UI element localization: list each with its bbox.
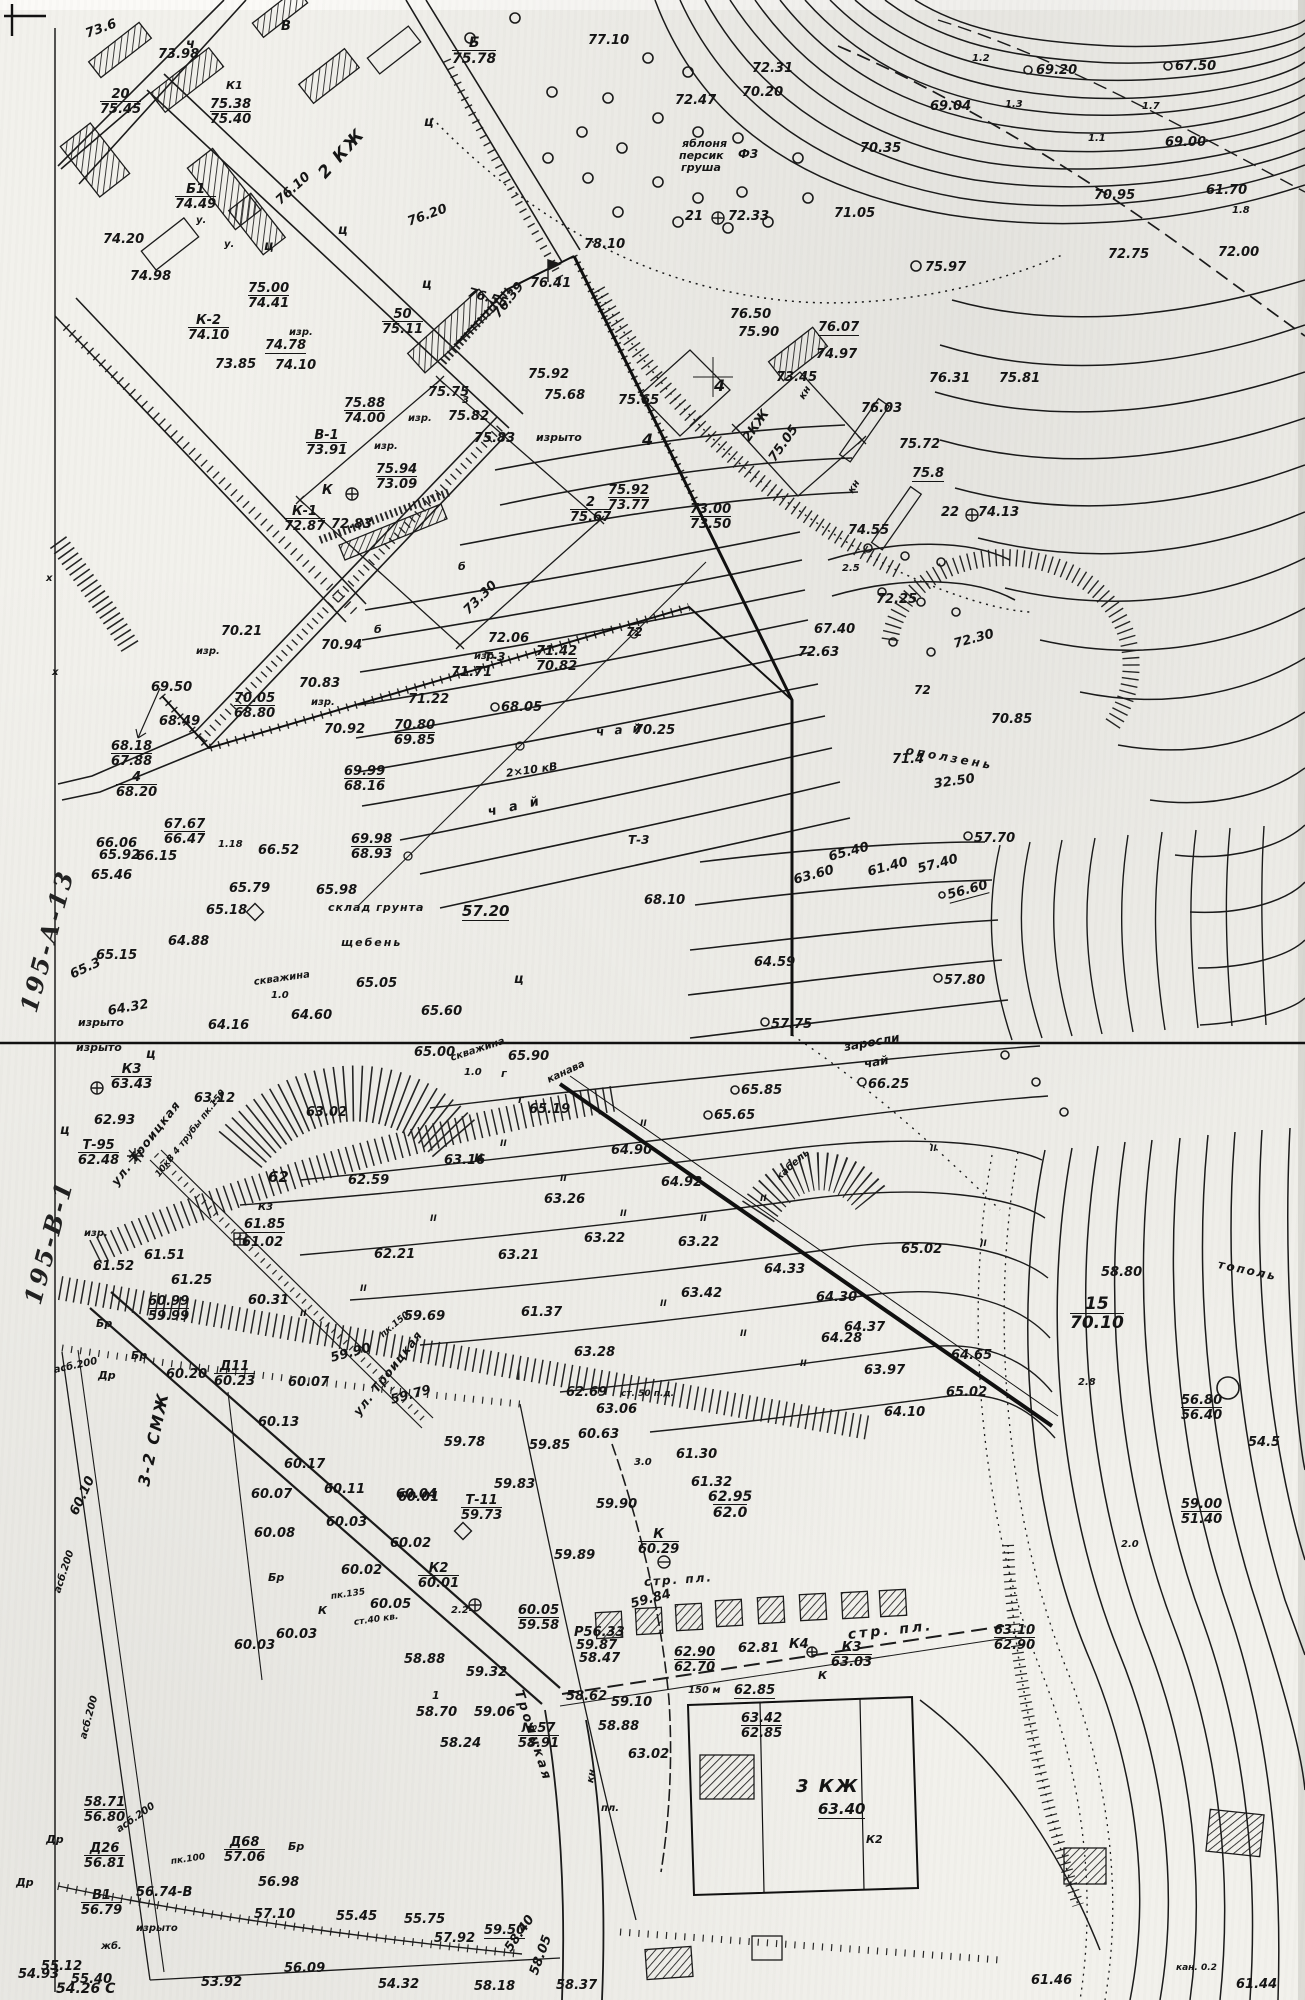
map-label: склад грунта: [328, 902, 424, 913]
map-label: 74.55: [848, 524, 889, 537]
map-label: 64.90: [611, 1144, 652, 1157]
map-label: II: [300, 1310, 307, 1319]
map-label: ц: [146, 1048, 156, 1061]
map-label: 58.47: [579, 1652, 620, 1665]
map-label: 61.85: [244, 1218, 285, 1233]
map-label: 56.60: [946, 879, 990, 904]
map-label: 58.18: [474, 1980, 515, 1993]
map-label: 61.32: [691, 1476, 732, 1489]
map-label: ч: [186, 38, 195, 51]
map-label: щебень: [341, 937, 402, 948]
map-label: кн: [847, 479, 863, 496]
map-label: Др: [98, 1370, 116, 1381]
map-label: у.: [196, 216, 206, 226]
map-label: 72: [914, 684, 931, 696]
elevation-fraction-label: 73.0073.50: [690, 503, 731, 531]
map-label: б: [458, 561, 466, 572]
map-label: 64.65: [951, 1349, 992, 1362]
map-label: 78.10: [584, 238, 625, 251]
map-label: 76.10: [274, 170, 313, 207]
elevation-fraction-label: Д1160.23: [214, 1360, 255, 1388]
map-label: 60.63: [578, 1428, 619, 1441]
map-label: 32.50: [933, 772, 976, 791]
map-label: 59.78: [444, 1436, 485, 1449]
map-label: изр.: [408, 414, 432, 424]
map-label: ст.40 кв.: [353, 1613, 399, 1628]
map-label: 58.62: [566, 1690, 607, 1703]
elevation-fraction-label: Б174.49: [175, 183, 216, 211]
map-label: 63.28: [574, 1346, 615, 1359]
map-label: 76.20: [406, 202, 449, 228]
map-label: 57.10: [254, 1908, 295, 1921]
elevation-fraction-label: 69.9968.16: [344, 765, 385, 793]
map-label: II: [500, 1140, 507, 1149]
map-label: 2.5: [842, 564, 860, 574]
map-label: 3-2 СМЖ: [136, 1391, 172, 1488]
map-label: II: [740, 1330, 747, 1339]
map-label: II: [800, 1360, 807, 1369]
map-label: стр. пл.: [644, 1571, 714, 1588]
map-label: 76.31: [929, 372, 970, 385]
map-label: 60.05: [370, 1598, 411, 1611]
map-label: 73.30: [461, 579, 499, 617]
elevation-fraction-label: К-172.87: [284, 505, 325, 533]
map-label: 1.7: [1142, 102, 1160, 112]
map-label: 75.82: [448, 410, 489, 423]
map-label: 65.02: [946, 1386, 987, 1399]
map-label: 63.42: [681, 1287, 722, 1300]
map-label: 77.10: [588, 34, 629, 47]
map-label: К2: [866, 1834, 883, 1845]
map-label: 53.92: [201, 1976, 242, 1989]
map-label: 60.02: [390, 1537, 431, 1550]
map-label: 57.40: [916, 853, 959, 876]
map-label: изрыто: [76, 1042, 122, 1053]
map-label: 66.15: [136, 850, 177, 863]
map-label: 63.06: [596, 1403, 637, 1416]
map-label: 65.85: [741, 1084, 782, 1097]
map-label: 60.31: [248, 1294, 289, 1307]
map-label: 70.95: [1094, 189, 1135, 202]
map-label: 61.30: [676, 1448, 717, 1461]
map-label: 1.8: [1232, 206, 1250, 216]
map-label: 61.51: [144, 1249, 185, 1262]
map-label: 60.20: [166, 1368, 207, 1381]
elevation-fraction-label: 67.6766.47: [164, 818, 205, 846]
map-label: 150 м: [688, 1686, 721, 1696]
map-label: 67.40: [814, 623, 855, 636]
map-label: 72.00: [1218, 246, 1259, 259]
map-label: 67.50: [1175, 60, 1216, 73]
map-label: 57.70: [974, 832, 1015, 845]
map-label: К: [318, 1605, 327, 1616]
elevation-fraction-label: 468.20: [116, 771, 157, 799]
map-label: ц: [338, 224, 348, 237]
map-label: 63.40: [818, 1802, 865, 1819]
map-label: 61.70: [1206, 184, 1247, 197]
map-label: 69.00: [1165, 136, 1206, 149]
map-label: 64.60: [291, 1009, 332, 1022]
map-label: 59.10: [611, 1696, 652, 1709]
map-label: 58.70: [416, 1706, 457, 1719]
map-label: пк.135: [330, 1588, 365, 1602]
map-label: 1.1: [1088, 134, 1106, 144]
map-label: 75.92: [528, 368, 569, 381]
map-label: 58.88: [598, 1720, 639, 1733]
map-label: II: [620, 1210, 627, 1219]
map-label: 57.80: [944, 974, 985, 987]
map-label: жб.: [101, 1942, 122, 1952]
map-label: 2.0: [1121, 1540, 1139, 1550]
elevation-fraction-label: 69.9868.93: [351, 833, 392, 861]
map-label: Бр: [288, 1841, 304, 1852]
map-label: 66.52: [258, 844, 299, 857]
map-label: 69.50: [151, 681, 192, 694]
map-label: кн: [586, 1769, 598, 1784]
map-label: 64.10: [884, 1406, 925, 1419]
map-label: б: [374, 624, 382, 635]
map-label: 10кВ 4 трубы пк.150: [154, 1089, 227, 1179]
elevation-fraction-label: В-173.91: [306, 429, 347, 457]
map-label: 58.88: [404, 1653, 445, 1666]
map-label: 72.33: [728, 210, 769, 223]
elevation-fraction-label: 70.0568.80: [234, 692, 275, 720]
map-label: 57.92: [434, 1932, 475, 1945]
map-label: 72.75: [1108, 248, 1149, 261]
map-label: ц: [60, 1124, 70, 1137]
map-label: 54.32: [378, 1978, 419, 1991]
elevation-fraction-label: 59.0051.40: [1181, 1498, 1222, 1526]
map-label: Бр: [96, 1318, 112, 1329]
map-label: Бр: [131, 1350, 147, 1361]
map-label: 63.22: [678, 1236, 719, 1249]
map-label: 63.22: [584, 1232, 625, 1245]
map-label: 54.5: [1248, 1436, 1280, 1449]
map-label: 70.94: [321, 639, 362, 652]
map-label: ч а й: [487, 795, 544, 819]
map-label: 64.59: [754, 956, 795, 969]
map-sheet: 195-А-13 195-В-1: [0, 0, 1305, 2000]
elevation-fraction-label: 75.9473.09: [376, 463, 417, 491]
elevation-fraction-label: К363.03: [831, 1641, 872, 1669]
map-label: ц: [264, 240, 274, 253]
map-label: 71.71: [451, 666, 492, 679]
map-label: 21: [685, 210, 703, 223]
map-label: 60.01: [398, 1491, 439, 1504]
map-label: 3 КЖ: [796, 1778, 860, 1796]
map-label: изрыто: [536, 432, 582, 443]
map-label: 2.8: [1078, 1378, 1096, 1388]
map-label: К4: [789, 1638, 809, 1651]
map-label: 61.40: [866, 856, 909, 879]
map-label: ц: [422, 278, 432, 291]
map-label: стр. пл.: [847, 1619, 934, 1642]
map-label: заросли: [843, 1031, 900, 1053]
map-label: 63.97: [864, 1364, 905, 1377]
map-label: пк.150: [379, 1311, 411, 1340]
map-label: канава: [546, 1059, 587, 1085]
elevation-fraction-label: К260.01: [418, 1562, 459, 1590]
map-label: асб.200: [53, 1549, 76, 1594]
map-label: 54.93: [18, 1968, 59, 1981]
map-label: 76.50: [730, 308, 771, 321]
map-label: 75.90: [738, 326, 779, 339]
map-label: чай: [863, 1054, 889, 1070]
map-label: 60.11: [324, 1483, 365, 1496]
elevation-fraction-label: 63.4262.85: [741, 1712, 782, 1740]
map-label: ц: [514, 973, 524, 986]
map-label: 58.80: [1101, 1266, 1142, 1279]
elevation-fraction-label: Т-1159.73: [461, 1494, 502, 1522]
elevation-fraction-label: К-274.10: [188, 314, 229, 342]
map-label: 1.0: [271, 991, 289, 1001]
map-label: изр.: [84, 1229, 108, 1239]
map-label: 61.02: [242, 1236, 283, 1249]
elevation-fraction-label: 70.8069.85: [394, 719, 435, 747]
map-label: изрыто: [136, 1924, 178, 1934]
map-label: 54.26 С: [56, 1982, 115, 1996]
map-label: 62.81: [738, 1642, 779, 1655]
map-label: 75.81: [999, 372, 1040, 385]
map-label: 64.16: [208, 1019, 249, 1032]
map-label: 68.49: [159, 715, 200, 728]
map-label: яблоня: [682, 138, 727, 149]
map-label: 62: [268, 1170, 289, 1185]
map-label: 74.78: [265, 339, 306, 354]
map-label: 74.10: [275, 359, 316, 372]
map-label: 73.85: [215, 358, 256, 371]
label-layer: 73.673.98чВ2075.45К175.3875.40Б75.7877.1…: [0, 0, 1305, 2000]
map-label: 58.37: [556, 1979, 597, 1992]
map-label: К3: [258, 1203, 273, 1213]
map-label: 64.92: [661, 1176, 702, 1189]
map-label: 70.83: [299, 677, 340, 690]
map-label: 59.85: [529, 1439, 570, 1452]
map-label: 56.09: [284, 1962, 325, 1975]
map-label: 61.52: [93, 1260, 134, 1273]
map-label: 60.13: [258, 1416, 299, 1429]
map-label: 63.60: [792, 864, 835, 887]
map-label: 62.21: [374, 1248, 415, 1261]
elevation-fraction-label: 75.0074.41: [248, 282, 289, 310]
map-label: 70.92: [324, 723, 365, 736]
map-label: 22: [941, 506, 959, 519]
map-label: 75.83: [474, 432, 515, 445]
elevation-fraction-label: 2075.45: [100, 88, 141, 116]
map-label: 64.30: [816, 1291, 857, 1304]
map-label: 71.22: [408, 693, 449, 706]
map-label: 65.15: [96, 949, 137, 962]
map-label: 65.3: [68, 956, 103, 981]
map-label: 65.60: [421, 1005, 462, 1018]
map-label: 56.74-В: [136, 1886, 192, 1899]
map-label: Др: [46, 1834, 64, 1845]
map-label: 71.05: [834, 207, 875, 220]
elevation-fraction-label: К60.29: [638, 1528, 679, 1556]
map-label: 73.6: [84, 17, 119, 40]
map-label: 63.26: [544, 1193, 585, 1206]
map-label: кан. 0.2: [1176, 1964, 1217, 1973]
map-label: К: [322, 484, 333, 497]
elevation-fraction-label: 1570.10: [1070, 1296, 1124, 1332]
map-label: II: [560, 1175, 567, 1184]
map-label: 55.45: [336, 1910, 377, 1923]
map-label: г: [518, 1094, 524, 1105]
map-label: Т-3: [484, 651, 506, 663]
map-label: 65.05: [356, 977, 397, 990]
map-label: 72.31: [752, 62, 793, 75]
map-label: ц: [424, 116, 434, 129]
elevation-fraction-label: 75.3875.40: [210, 98, 251, 126]
map-label: 65.46: [91, 869, 132, 882]
map-label: 1.18: [218, 840, 243, 850]
map-label: 60.10: [68, 1474, 97, 1517]
map-label: 65.19: [529, 1103, 570, 1116]
map-label: 60.03: [276, 1628, 317, 1641]
elevation-fraction-label: В156.79: [81, 1889, 122, 1917]
map-label: 63.02: [628, 1748, 669, 1761]
map-label: 73.45: [776, 371, 817, 384]
map-label: Бр: [268, 1572, 284, 1583]
map-label: 72.47: [675, 94, 716, 107]
map-label: 57.75: [771, 1018, 812, 1031]
map-label: 75.65: [618, 394, 659, 407]
elevation-fraction-label: 63.1062.90: [994, 1624, 1035, 1652]
map-label: 65.90: [508, 1050, 549, 1063]
map-label: II: [930, 1145, 937, 1154]
map-label: 60.07: [251, 1488, 292, 1501]
map-label: 59.84: [629, 1588, 672, 1611]
map-label: 1.2: [972, 54, 990, 64]
map-label: 2×10 кВ: [505, 761, 558, 779]
map-label: 57.20: [462, 904, 509, 921]
map-label: 62.93: [94, 1114, 135, 1127]
map-label: 63.21: [498, 1249, 539, 1262]
map-label: 60.03: [234, 1639, 275, 1652]
map-label: 2.2-: [451, 1606, 473, 1616]
map-label: 65.92: [99, 849, 140, 862]
map-label: 75.68: [544, 389, 585, 402]
map-label: II: [360, 1285, 367, 1294]
map-label: 60.17: [284, 1458, 325, 1471]
map-label: 64.88: [168, 935, 209, 948]
map-label: 1.0: [464, 1068, 482, 1078]
elevation-fraction-label: 58.7156.80: [84, 1796, 125, 1824]
elevation-fraction-label: 5075.11: [382, 308, 423, 336]
map-label: 64.32: [107, 998, 150, 1018]
map-label: 59.90: [596, 1498, 637, 1511]
map-label: асб.200: [53, 1357, 98, 1376]
map-label: 61.44: [1236, 1978, 1277, 1991]
map-label: кн: [798, 385, 814, 402]
map-label: 74.97: [816, 348, 857, 361]
map-label: 75.05: [767, 423, 801, 464]
map-label: 58.05: [528, 1934, 554, 1977]
map-label: тополь: [1217, 1258, 1278, 1282]
map-label: 59.89: [554, 1549, 595, 1562]
map-label: К: [818, 1670, 827, 1681]
map-label: 1: [432, 1690, 440, 1701]
map-label: 4: [714, 378, 725, 394]
map-label: Т-3: [628, 834, 650, 846]
map-label: 75.8: [912, 467, 944, 482]
map-label: 65.40: [827, 841, 870, 864]
map-label: 70.85: [991, 713, 1032, 726]
map-label: 76.03: [861, 402, 902, 415]
map-label: 59.32: [466, 1666, 507, 1679]
map-label: 3: [462, 396, 469, 406]
map-label: 72.06: [488, 632, 529, 645]
elevation-fraction-label: Д2656.81: [84, 1842, 125, 1870]
map-label: 59.83: [494, 1478, 535, 1491]
map-label: 61.46: [1031, 1974, 1072, 1987]
map-label: 64.28: [821, 1332, 862, 1345]
map-label: 76.07: [818, 321, 859, 336]
map-label: 68.05: [501, 701, 542, 714]
elevation-fraction-label: 75.8874.00: [344, 397, 385, 425]
map-label: К1: [226, 80, 243, 91]
map-label: 72.30: [952, 628, 995, 651]
map-label: 60.03: [326, 1516, 367, 1529]
elevation-fraction-label: Т-9562.48: [78, 1139, 119, 1167]
map-label: персик: [679, 150, 724, 161]
map-label: ст. 50 п.д.: [621, 1390, 674, 1399]
map-label: 76.41: [530, 277, 571, 290]
map-label: 1.3: [1005, 100, 1023, 110]
map-label: 74.13: [978, 506, 1019, 519]
map-label: 72.83: [331, 518, 372, 531]
map-label: 75.72: [899, 438, 940, 451]
map-label: пк.100: [170, 1853, 205, 1867]
elevation-fraction-label: 68.1867.88: [111, 740, 152, 768]
map-label: 2КЖ: [741, 408, 772, 445]
map-label: 65.65: [714, 1109, 755, 1122]
map-label: скважина: [253, 970, 310, 988]
map-label: 55.75: [404, 1913, 445, 1926]
map-label: изр.: [196, 647, 220, 657]
map-label: В: [281, 20, 291, 33]
elevation-fraction-label: Б75.78: [452, 36, 496, 66]
map-label: 59.90: [329, 1342, 372, 1365]
map-label: 56.98: [258, 1876, 299, 1889]
map-label: 65.18: [206, 904, 247, 917]
map-label: 2 КЖ: [316, 126, 369, 182]
map-label: 72: [626, 626, 643, 638]
map-label: 62.59: [348, 1174, 389, 1187]
map-label: 62.85: [734, 1684, 775, 1699]
map-label: 70.20: [742, 86, 783, 99]
map-label: 70.35: [860, 142, 901, 155]
map-label: асб.200: [79, 1695, 100, 1740]
map-label: Ф3: [738, 148, 758, 160]
map-label: пл.: [601, 1804, 619, 1814]
map-label: 60.07: [288, 1376, 329, 1389]
map-label: 74.98: [130, 270, 171, 283]
map-label: изр.: [311, 698, 335, 708]
map-label: 61.25: [171, 1274, 212, 1287]
map-label: 65.79: [229, 882, 270, 895]
map-label: II: [700, 1215, 707, 1224]
elevation-fraction-label: 71.4270.82: [536, 645, 577, 673]
map-label: 61.37: [521, 1306, 562, 1319]
map-label: 69.04: [930, 100, 971, 113]
map-label: оползень: [905, 744, 994, 771]
map-label: изрыто: [78, 1017, 124, 1028]
elevation-fraction-label: 60.0559.58: [518, 1604, 559, 1632]
map-label: изр.: [289, 328, 313, 338]
map-label: II: [760, 1195, 767, 1204]
map-label: 68.10: [644, 894, 685, 907]
